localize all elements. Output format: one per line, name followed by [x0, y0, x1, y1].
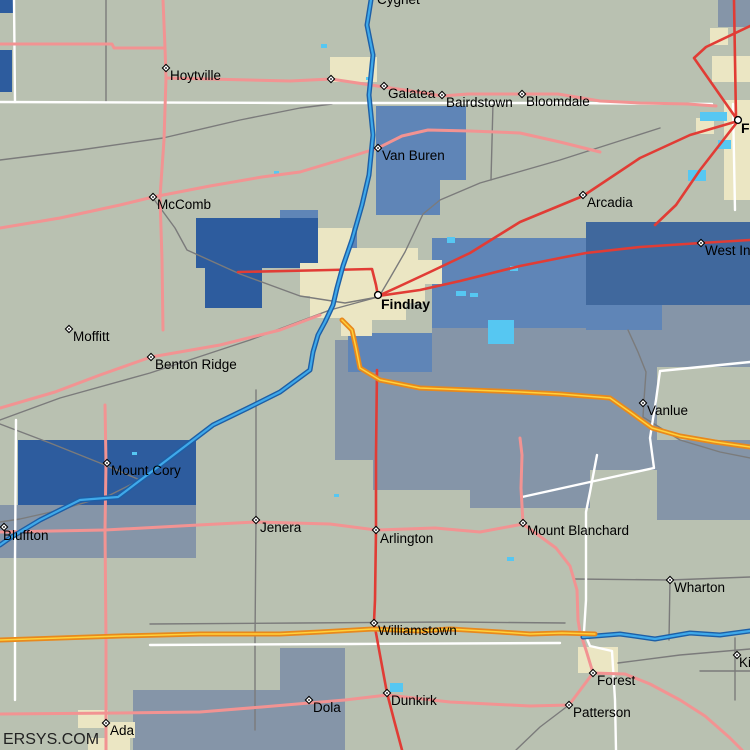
town-marker-dot: [592, 672, 594, 674]
lake: [321, 44, 327, 48]
town-marker-dot: [377, 147, 379, 149]
road-pink: [520, 438, 523, 524]
town-label-hoytville: Hoytville: [170, 68, 221, 83]
town-label-ada: Ada: [110, 723, 135, 738]
road-pink: [105, 405, 106, 750]
town-label-wharton: Wharton: [674, 580, 725, 595]
lake: [700, 112, 727, 121]
lake: [470, 293, 478, 297]
town-marker-dot: [255, 519, 257, 521]
town-label-galatea: Galatea: [388, 86, 436, 101]
road-gray: [618, 649, 750, 663]
census-tract-polygon: [0, 50, 12, 92]
town-marker-dot: [521, 93, 523, 95]
town-label-bluffton: Bluffton: [3, 528, 49, 543]
census-tract-polygon: [590, 330, 657, 470]
town-label-mount-blanchard: Mount Blanchard: [527, 523, 629, 538]
road-white: [15, 420, 16, 700]
city-area-polygon: [300, 228, 442, 336]
town-marker-dot: [642, 402, 644, 404]
town-label-patterson: Patterson: [573, 705, 631, 720]
lake: [334, 494, 339, 497]
road-gray: [255, 390, 256, 730]
town-marker-dot: [106, 462, 108, 464]
town-label-williamstown: Williamstown: [378, 623, 457, 638]
town-label-findlay: Findlay: [381, 296, 430, 312]
town-marker-dot: [383, 85, 385, 87]
lake: [447, 237, 455, 243]
town-label-dunkirk: Dunkirk: [391, 693, 437, 708]
town-marker-dot: [375, 529, 377, 531]
town-marker-dot: [669, 579, 671, 581]
watermark: ERSYS.COM: [3, 731, 99, 749]
town-label-west-inde: West Inde: [705, 243, 750, 258]
road-gray: [669, 580, 670, 640]
lake: [390, 683, 403, 692]
town-label-kir: Kir: [739, 655, 750, 670]
census-tract-polygon: [0, 0, 13, 13]
road-gray: [150, 622, 565, 624]
road-white: [150, 643, 560, 645]
town-marker-dot: [330, 78, 332, 80]
town-label-mccomb: McComb: [157, 197, 211, 212]
census-tract-polygon: [657, 440, 750, 520]
town-label-benton-ridge: Benton Ridge: [155, 357, 237, 372]
town-label-cygnet: Cygnet: [377, 0, 420, 7]
town-label-mount-cory: Mount Cory: [111, 463, 181, 478]
town-marker-dot: [736, 654, 738, 656]
town-label-fostoria: Fostoria: [741, 120, 750, 136]
town-label-bairdstown: Bairdstown: [446, 95, 513, 110]
town-label-jenera: Jenera: [260, 520, 302, 535]
road-gray: [516, 705, 569, 750]
map-viewport[interactable]: CygnetHoytvilleGalateaBairdstownBloomdal…: [0, 0, 750, 750]
road-gray: [491, 103, 493, 180]
census-tract-polygon: [133, 648, 345, 750]
lake: [507, 557, 514, 561]
road-white: [14, 0, 15, 102]
census-tract-polygon: [586, 305, 662, 330]
town-marker-dot: [150, 356, 152, 358]
town-label-bloomdale: Bloomdale: [526, 94, 590, 109]
town-marker-dot: [522, 522, 524, 524]
town-marker-dot: [68, 328, 70, 330]
town-label-arcadia: Arcadia: [587, 195, 633, 210]
town-marker-dot: [582, 194, 584, 196]
road-pink: [0, 44, 163, 48]
town-label-vanlue: Vanlue: [647, 403, 688, 418]
road-orange: [0, 629, 595, 640]
lake: [132, 452, 137, 455]
town-label-van-buren: Van Buren: [382, 148, 445, 163]
census-tract-polygon: [586, 222, 750, 305]
town-marker-dot: [441, 94, 443, 96]
lake: [456, 291, 466, 296]
town-label-moffitt: Moffitt: [73, 329, 110, 344]
town-marker-dot: [105, 722, 107, 724]
town-marker-dot: [700, 242, 702, 244]
town-label-forest: Forest: [597, 673, 636, 688]
census-tract-polygon: [657, 305, 750, 367]
town-marker-dot: [568, 704, 570, 706]
map-canvas[interactable]: CygnetHoytvilleGalateaBairdstownBloomdal…: [0, 0, 750, 750]
town-marker-dot: [165, 67, 167, 69]
town-label-dola: Dola: [313, 700, 341, 715]
town-marker-dot: [152, 196, 154, 198]
lake: [488, 320, 514, 344]
city-area-polygon: [712, 56, 750, 82]
town-marker-dot: [373, 622, 375, 624]
town-label-arlington: Arlington: [380, 531, 433, 546]
town-marker-dot: [308, 699, 310, 701]
town-marker-dot: [386, 692, 388, 694]
